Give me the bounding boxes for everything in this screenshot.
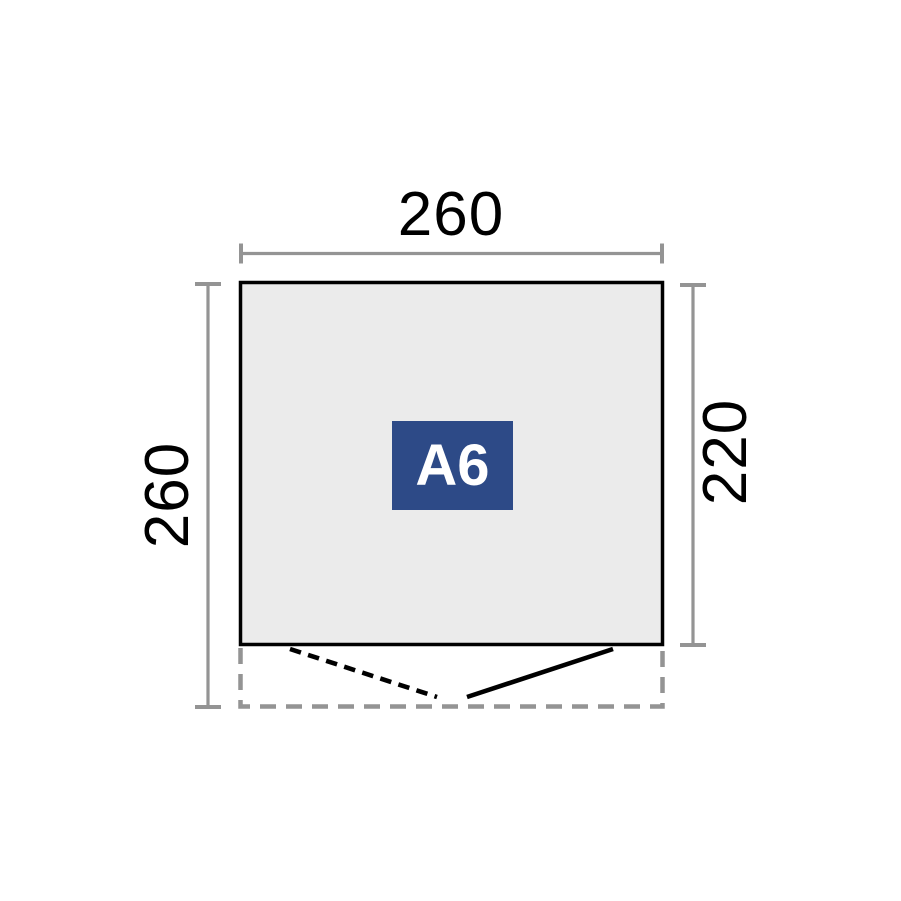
door-leaf-dashed-line bbox=[290, 649, 437, 697]
door-leaf-solid-line bbox=[467, 649, 613, 697]
model-badge-label: A6 bbox=[415, 437, 489, 495]
dimension-label-building-depth: 220 bbox=[695, 399, 757, 505]
door-swing-footprint-dashed-outline bbox=[241, 648, 663, 707]
model-badge: A6 bbox=[392, 421, 513, 510]
dimension-label-overall-depth: 260 bbox=[137, 442, 199, 548]
floor-plan-diagram: 260 260 220 A6 bbox=[0, 0, 901, 901]
dimension-label-overall-width: 260 bbox=[351, 184, 551, 246]
